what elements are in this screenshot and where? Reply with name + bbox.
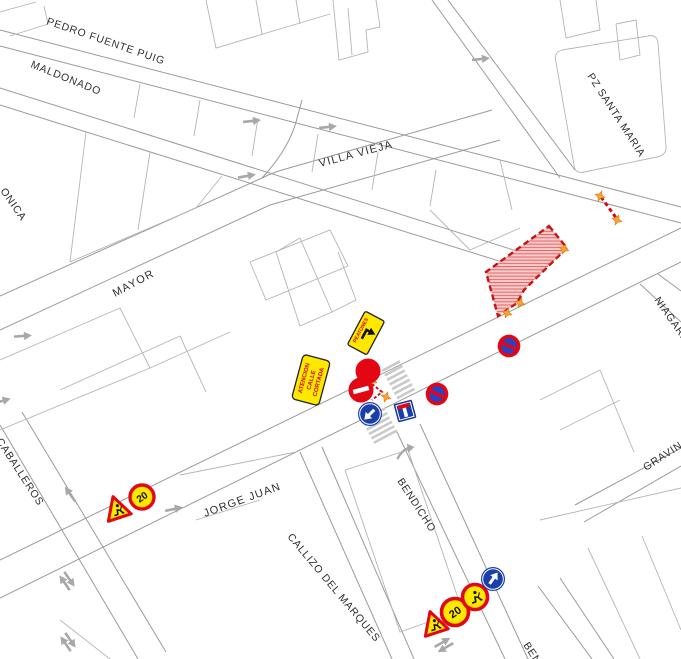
mandatory-direction-sign xyxy=(358,402,382,426)
traffic-direction-arrow-icon xyxy=(0,395,12,408)
two-way-arrow-icon xyxy=(57,630,79,653)
roadworks-warning-panel-sign: ATENCION CALLE CORTADA xyxy=(292,354,331,406)
street-label-niagara: NIAGARA xyxy=(652,295,681,345)
map-canvas: ATENCION CALLE CORTADA PEATONES xyxy=(0,0,681,659)
dead-end-sign xyxy=(394,400,416,422)
no-parking-sign xyxy=(425,382,449,406)
traffic-cone-icon xyxy=(610,213,623,226)
traffic-plan-map: ATENCION CALLE CORTADA PEATONES xyxy=(0,0,681,659)
street-label-maldonado: MALDONADO xyxy=(29,59,103,98)
street-label-villa-vieja: VILLA VIEJA xyxy=(318,139,395,170)
street-label-jorge-juan: JORGE JUAN xyxy=(202,481,283,520)
street-label-veronica: ONICA xyxy=(0,186,29,223)
mandatory-direction-sign xyxy=(481,567,505,591)
work-zone-hatched-area xyxy=(486,226,567,316)
traffic-direction-arrow-icon xyxy=(243,116,262,126)
traffic-direction-arrow-icon xyxy=(319,122,338,132)
traffic-direction-arrow-icon xyxy=(472,54,491,64)
street-label-gravina: GRAVINA xyxy=(641,435,681,473)
speed-limit-20-sign: 20 xyxy=(130,485,154,509)
street-label-ben: BEN xyxy=(520,640,543,659)
pedestrian-detour-panel-sign: PEATONES xyxy=(347,311,384,355)
street-label-caballeros: CABALLEROS xyxy=(0,436,46,508)
barrier-line xyxy=(601,197,617,219)
street-label-callizo-del-marques: CALLIZO DEL MARQUES xyxy=(285,531,383,644)
two-way-arrow-icon xyxy=(56,569,78,592)
no-parking-sign xyxy=(497,334,521,358)
parcel-outlines xyxy=(0,0,681,659)
traffic-direction-arrow-icon xyxy=(14,331,33,341)
two-way-arrow-icon xyxy=(433,634,456,655)
street-label-mayor: MAYOR xyxy=(111,268,157,300)
traffic-direction-arrow-icon xyxy=(61,484,78,504)
street-label-pedro-fuente-puig: PEDRO FUENTE PUIG xyxy=(45,15,167,67)
road-network xyxy=(0,0,681,659)
street-label-pz-santa-maria: PZ SANTA MARIA xyxy=(584,71,647,159)
roadworks-triangle-sign xyxy=(102,493,132,521)
roadworks-circle-sign xyxy=(463,585,488,610)
